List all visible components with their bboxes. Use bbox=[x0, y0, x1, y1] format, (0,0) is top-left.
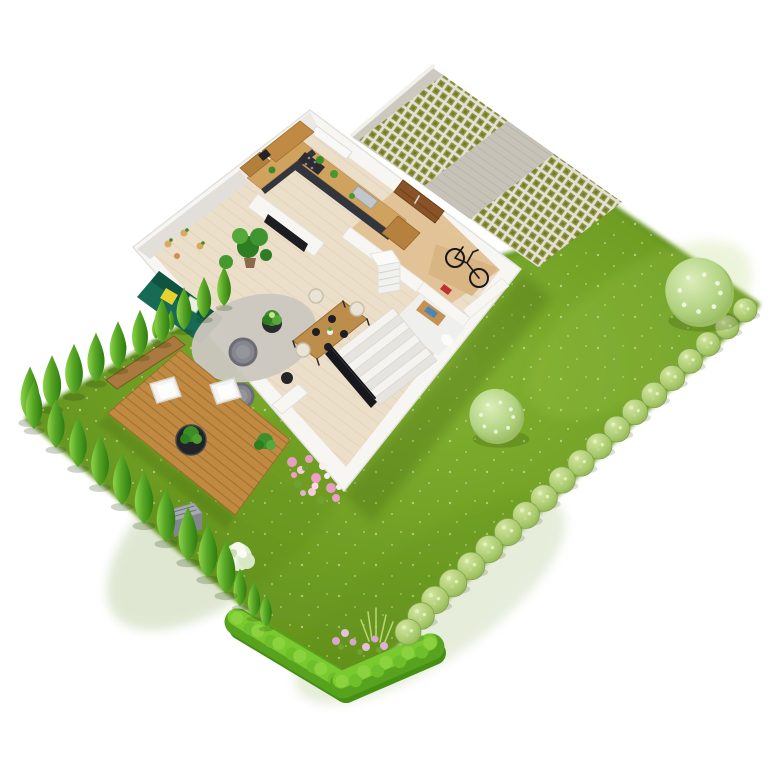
floor-plan-render bbox=[0, 0, 768, 768]
paint-root bbox=[18, 66, 768, 741]
armchair-1-cushion bbox=[236, 345, 250, 359]
dining-chair-2 bbox=[350, 302, 364, 316]
dining-chair-4 bbox=[296, 343, 310, 357]
scene-container bbox=[0, 0, 768, 768]
plant-pot bbox=[244, 258, 256, 268]
side-table bbox=[281, 372, 293, 384]
dining-chair-1 bbox=[309, 289, 323, 303]
